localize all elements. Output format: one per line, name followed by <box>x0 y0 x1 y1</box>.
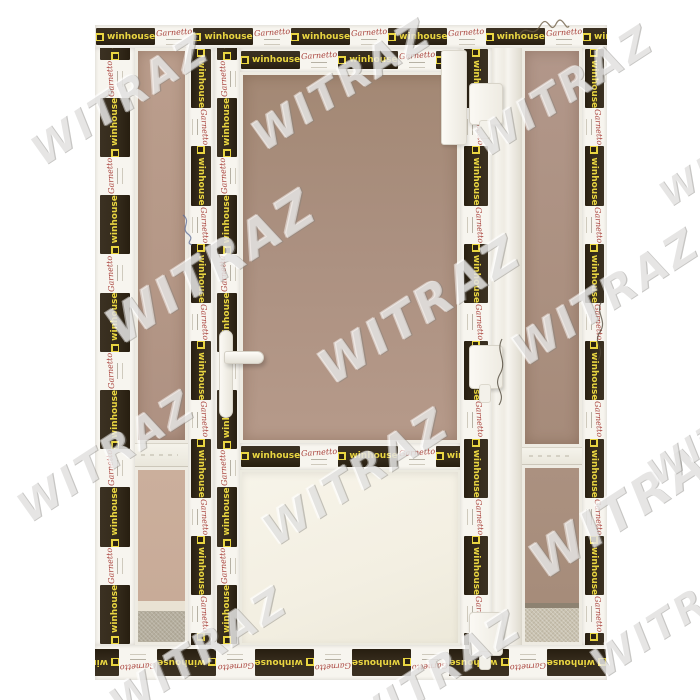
winhouse-logo-icon <box>111 344 119 352</box>
winhouse-wordmark: winhouse <box>255 658 303 668</box>
baseboard-behind-glass <box>138 601 185 611</box>
garnetto-wordmark: Garnetto <box>105 158 116 195</box>
winhouse-wordmark: winhouse <box>252 451 300 461</box>
garnetto-tape-block: Garnetto <box>100 548 130 584</box>
winhouse-logo-icon <box>403 659 411 667</box>
garnetto-wordmark: Garnetto <box>474 499 485 536</box>
winhouse-logo-icon <box>193 33 201 41</box>
winhouse-logo-icon <box>197 633 205 641</box>
winhouse-logo-icon <box>472 439 480 447</box>
winhouse-logo-icon <box>197 439 205 447</box>
winhouse-tape-block: winhouse <box>100 98 130 157</box>
winhouse-logo-icon <box>241 56 249 64</box>
tape-fineprint-lines <box>117 266 123 282</box>
winhouse-tape-block: winhouse <box>464 439 488 498</box>
winhouse-wordmark: winhouse <box>352 658 400 668</box>
winhouse-tape-block: winhouse <box>585 536 604 595</box>
winhouse-logo-icon <box>591 244 599 252</box>
garnetto-wordmark: Garnetto <box>217 158 228 195</box>
garnetto-wordmark: Garnetto <box>120 661 157 672</box>
garnetto-tape-block: Garnetto <box>510 649 546 676</box>
garnetto-tape-block: Garnetto <box>120 649 156 676</box>
garnetto-wordmark: Garnetto <box>448 27 485 38</box>
tape-fineprint-lines <box>193 606 199 622</box>
garnetto-wordmark: Garnetto <box>593 499 604 536</box>
tape-fineprint-lines <box>422 654 438 660</box>
tape-fineprint-lines <box>586 509 592 525</box>
winhouse-logo-icon <box>591 146 599 154</box>
winhouse-wordmark: winhouse <box>590 644 600 645</box>
garnetto-tape-block: Garnetto <box>315 649 351 676</box>
winhouse-logo-icon <box>472 146 480 154</box>
garnetto-tape-block: Garnetto <box>464 207 488 243</box>
winhouse-logo-icon <box>197 244 205 252</box>
wall-behind-glass <box>525 468 579 603</box>
winhouse-logo-icon <box>197 49 205 57</box>
right-sidelight-glass-upper <box>522 48 582 447</box>
tape-fineprint-lines <box>130 654 146 660</box>
garnetto-wordmark: Garnetto <box>199 304 210 341</box>
tape-fineprint-lines <box>586 119 592 135</box>
winhouse-logo-icon <box>598 659 606 667</box>
winhouse-tape-block: winhouse <box>100 195 130 254</box>
winhouse-logo-icon <box>338 56 346 64</box>
tape-fineprint-lines <box>230 558 236 574</box>
winhouse-tape-block: winhouse <box>436 446 460 467</box>
garnetto-wordmark: Garnetto <box>474 304 485 341</box>
winhouse-wordmark: winhouse <box>110 98 120 146</box>
garnetto-tape-block: Garnetto <box>191 109 211 145</box>
winhouse-tape-block: winhouse <box>255 649 314 676</box>
winhouse-logo-icon <box>223 539 231 547</box>
winhouse-wordmark: winhouse <box>196 60 206 108</box>
garnetto-wordmark: Garnetto <box>199 206 210 243</box>
garnetto-wordmark: Garnetto <box>199 499 210 536</box>
handwritten-mark <box>516 16 572 44</box>
garnetto-wordmark: Garnetto <box>593 401 604 438</box>
winhouse-tape-block: winhouse <box>583 28 607 45</box>
winhouse-wordmark: winhouse <box>471 450 481 498</box>
tape-fineprint-lines <box>468 509 474 525</box>
winhouse-tape-block: winhouse <box>96 28 155 45</box>
handwritten-mark <box>494 336 510 408</box>
tape-fineprint-lines <box>459 39 475 45</box>
garnetto-wordmark: Garnetto <box>301 447 338 458</box>
winhouse-wordmark: winhouse <box>222 48 232 49</box>
winhouse-logo-icon <box>197 341 205 349</box>
winhouse-logo-icon <box>591 49 599 57</box>
winhouse-wordmark: winhouse <box>471 255 481 303</box>
winhouse-wordmark: winhouse <box>196 352 206 400</box>
tape-fineprint-lines <box>230 266 236 282</box>
garnetto-wordmark: Garnetto <box>253 27 290 38</box>
carpet-floor-behind-glass <box>525 608 579 642</box>
door-glass <box>240 72 460 443</box>
garnetto-wordmark: Garnetto <box>105 353 116 390</box>
winhouse-logo-icon <box>223 149 231 157</box>
tape-fineprint-lines <box>325 654 341 660</box>
tape-outer-bottom-frame: winhouseGarnettowinhouseGarnettowinhouse… <box>95 645 607 680</box>
garnetto-tape-block: Garnetto <box>100 158 130 194</box>
door-hinge-top <box>469 83 503 125</box>
winhouse-tape-block: winhouse <box>217 98 237 157</box>
garnetto-tape-block: Garnetto <box>399 446 435 467</box>
winhouse-wordmark: winhouse <box>196 450 206 498</box>
garnetto-tape-block: Garnetto <box>100 61 130 97</box>
winhouse-tape-block: winhouse <box>291 28 350 45</box>
door-hinge-bottom <box>469 612 503 656</box>
winhouse-wordmark: winhouse <box>471 157 481 205</box>
winhouse-logo-icon <box>111 659 119 667</box>
tape-fineprint-lines <box>468 412 474 428</box>
winhouse-logo-icon <box>197 536 205 544</box>
winhouse-logo-icon <box>223 636 231 644</box>
tape-fineprint-lines <box>117 71 123 87</box>
garnetto-wordmark: Garnetto <box>412 661 449 672</box>
winhouse-wordmark: winhouse <box>110 48 120 49</box>
garnetto-tape-block: Garnetto <box>412 649 448 676</box>
winhouse-logo-icon <box>111 441 119 449</box>
winhouse-tape-block: winhouse <box>217 487 237 546</box>
tape-fineprint-lines <box>264 39 280 45</box>
garnetto-tape-block: Garnetto <box>100 450 130 486</box>
winhouse-tape-block: winhouse <box>157 649 216 676</box>
wall-behind-glass <box>138 470 185 601</box>
winhouse-logo-icon <box>388 33 396 41</box>
door-lower-panel <box>240 470 460 645</box>
winhouse-wordmark: winhouse <box>590 547 600 595</box>
handwritten-mark <box>178 212 198 248</box>
garnetto-wordmark: Garnetto <box>105 60 116 97</box>
winhouse-wordmark: winhouse <box>349 55 397 65</box>
right-sidelight-glass-lower <box>522 465 582 645</box>
garnetto-tape-block: Garnetto <box>464 304 488 340</box>
winhouse-tape-block: winhouse <box>217 585 237 644</box>
garnetto-wordmark: Garnetto <box>217 547 228 584</box>
garnetto-tape-block: Garnetto <box>100 255 130 291</box>
winhouse-tape-block: winhouse <box>338 446 397 467</box>
winhouse-tape-block: winhouse <box>100 48 130 60</box>
tape-fineprint-lines <box>409 62 425 68</box>
tape-fineprint-lines <box>468 314 474 330</box>
tape-door-top-rail: winhouseGarnettowinhouseGarnettowinhouse… <box>240 48 460 72</box>
handwritten-mark <box>592 298 612 364</box>
tape-fineprint-lines <box>520 654 536 660</box>
garnetto-tape-block: Garnetto <box>464 499 488 535</box>
winhouse-tape-block: winhouse <box>585 49 604 108</box>
garnetto-wordmark: Garnetto <box>301 50 338 61</box>
winhouse-logo-icon <box>96 33 104 41</box>
tape-fineprint-lines <box>311 459 327 465</box>
winhouse-logo-icon <box>591 536 599 544</box>
garnetto-tape-block: Garnetto <box>217 255 237 291</box>
tape-fineprint-lines <box>586 217 592 233</box>
garnetto-wordmark: Garnetto <box>474 401 485 438</box>
winhouse-logo-icon <box>291 33 299 41</box>
winhouse-logo-icon <box>306 659 314 667</box>
winhouse-logo-icon <box>501 659 509 667</box>
winhouse-tape-block: winhouse <box>100 293 130 352</box>
garnetto-wordmark: Garnetto <box>217 661 254 672</box>
garnetto-tape-block: Garnetto <box>585 401 604 437</box>
garnetto-tape-block: Garnetto <box>191 596 211 632</box>
winhouse-logo-icon <box>111 636 119 644</box>
winhouse-tape-block: winhouse <box>585 244 604 303</box>
winhouse-logo-icon <box>583 33 591 41</box>
winhouse-logo-icon <box>472 536 480 544</box>
winhouse-logo-icon <box>338 452 346 460</box>
winhouse-tape-block: winhouse <box>217 48 237 60</box>
tape-fineprint-lines <box>230 460 236 476</box>
garnetto-tape-block: Garnetto <box>464 401 488 437</box>
winhouse-wordmark: winhouse <box>302 32 350 42</box>
winhouse-logo-icon <box>111 52 119 60</box>
winhouse-logo-icon <box>472 244 480 252</box>
garnetto-tape-block: Garnetto <box>585 499 604 535</box>
winhouse-wordmark: winhouse <box>107 32 155 42</box>
winhouse-wordmark: winhouse <box>447 451 460 461</box>
garnetto-tape-block: Garnetto <box>217 649 253 676</box>
winhouse-tape-block: winhouse <box>191 633 211 645</box>
winhouse-wordmark: winhouse <box>222 195 232 243</box>
garnetto-wordmark: Garnetto <box>351 27 388 38</box>
garnetto-tape-block: Garnetto <box>448 28 484 45</box>
tape-fineprint-lines <box>166 39 182 45</box>
winhouse-wordmark: winhouse <box>222 585 232 633</box>
winhouse-tape-block: winhouse <box>585 439 604 498</box>
winhouse-tape-block: winhouse <box>338 51 397 69</box>
tape-fineprint-lines <box>193 412 199 428</box>
winhouse-tape-block: winhouse <box>464 536 488 595</box>
winhouse-wordmark: winhouse <box>110 195 120 243</box>
tape-fineprint-lines <box>468 217 474 233</box>
garnetto-wordmark: Garnetto <box>105 450 116 487</box>
garnetto-wordmark: Garnetto <box>593 206 604 243</box>
garnetto-tape-block: Garnetto <box>217 61 237 97</box>
winhouse-logo-icon <box>223 52 231 60</box>
winhouse-wordmark: winhouse <box>349 451 397 461</box>
tape-fineprint-lines <box>117 168 123 184</box>
winhouse-wordmark: winhouse <box>471 547 481 595</box>
tape-fineprint-lines <box>586 412 592 428</box>
winhouse-wordmark: winhouse <box>590 157 600 205</box>
winhouse-tape-block: winhouse <box>241 446 300 467</box>
winhouse-wordmark: winhouse <box>196 157 206 205</box>
garnetto-wordmark: Garnetto <box>199 401 210 438</box>
winhouse-tape-block: winhouse <box>388 28 447 45</box>
winhouse-logo-icon <box>436 452 444 460</box>
garnetto-tape-block: Garnetto <box>217 548 237 584</box>
winhouse-wordmark: winhouse <box>590 255 600 303</box>
winhouse-wordmark: winhouse <box>196 644 206 645</box>
winhouse-tape-block: winhouse <box>191 439 211 498</box>
garnetto-tape-block: Garnetto <box>191 304 211 340</box>
winhouse-tape-block: winhouse <box>191 146 211 205</box>
winhouse-wordmark: winhouse <box>252 55 300 65</box>
winhouse-wordmark: winhouse <box>547 658 595 668</box>
winhouse-tape-block: winhouse <box>193 28 252 45</box>
garnetto-wordmark: Garnetto <box>217 255 228 292</box>
garnetto-wordmark: Garnetto <box>398 50 435 61</box>
winhouse-wordmark: winhouse <box>590 450 600 498</box>
tape-fineprint-lines <box>361 39 377 45</box>
garnetto-tape-block: Garnetto <box>399 51 435 69</box>
tape-fineprint-lines <box>193 119 199 135</box>
garnetto-wordmark: Garnetto <box>105 255 116 292</box>
tape-fineprint-lines <box>311 62 327 68</box>
garnetto-wordmark: Garnetto <box>593 596 604 633</box>
watermark: WITRAZ <box>651 85 700 216</box>
garnetto-tape-block: Garnetto <box>217 158 237 194</box>
winhouse-wordmark: winhouse <box>110 487 120 535</box>
carpet-floor-behind-glass <box>138 611 185 642</box>
garnetto-wordmark: Garnetto <box>217 60 228 97</box>
winhouse-tape-block: winhouse <box>585 633 604 645</box>
winhouse-logo-icon <box>111 246 119 254</box>
winhouse-tape-block: winhouse <box>100 585 130 644</box>
winhouse-logo-icon <box>223 246 231 254</box>
winhouse-tape-block: winhouse <box>191 244 211 303</box>
garnetto-wordmark: Garnetto <box>217 450 228 487</box>
watermark: WITRAZ <box>639 363 700 494</box>
garnetto-wordmark: Garnetto <box>315 661 352 672</box>
winhouse-logo-icon <box>197 146 205 154</box>
winhouse-wordmark: winhouse <box>590 60 600 108</box>
room-view-through-glass <box>138 470 185 642</box>
winhouse-tape-block: winhouse <box>191 49 211 108</box>
winhouse-logo-icon <box>223 441 231 449</box>
garnetto-tape-block: Garnetto <box>351 28 387 45</box>
winhouse-tape-block: winhouse <box>217 195 237 254</box>
left-sidelight-glass-lower <box>135 467 188 645</box>
tape-outer-left-frame: winhouseGarnettowinhouseGarnettowinhouse… <box>95 48 135 645</box>
garnetto-tape-block: Garnetto <box>191 499 211 535</box>
winhouse-logo-icon <box>241 452 249 460</box>
winhouse-logo-icon <box>111 539 119 547</box>
winhouse-wordmark: winhouse <box>110 293 120 341</box>
tape-fineprint-lines <box>228 654 244 660</box>
left-sidelight-divider-rail <box>135 443 188 467</box>
winhouse-wordmark: winhouse <box>399 32 447 42</box>
winhouse-tape-block: winhouse <box>100 390 130 449</box>
winhouse-logo-icon <box>208 659 216 667</box>
tape-fineprint-lines <box>193 509 199 525</box>
tape-fineprint-lines <box>409 459 425 465</box>
winhouse-tape-block: winhouse <box>100 487 130 546</box>
tape-fineprint-lines <box>586 606 592 622</box>
winhouse-tape-block: winhouse <box>191 536 211 595</box>
winhouse-logo-icon <box>111 149 119 157</box>
winhouse-tape-block: winhouse <box>191 341 211 400</box>
door-handle-lever <box>224 351 264 364</box>
door-handle-backplate <box>219 330 233 418</box>
garnetto-wordmark: Garnetto <box>199 109 210 146</box>
hinge-side-cover-profile <box>441 50 467 145</box>
garnetto-wordmark: Garnetto <box>593 109 604 146</box>
right-sidelight-divider-rail <box>522 447 582 465</box>
garnetto-wordmark: Garnetto <box>398 447 435 458</box>
tape-door-mid-rail: winhouseGarnettowinhouseGarnettowinhouse… <box>240 443 460 470</box>
garnetto-tape-block: Garnetto <box>301 446 337 467</box>
garnetto-wordmark: Garnetto <box>105 547 116 584</box>
tape-fineprint-lines <box>117 558 123 574</box>
garnetto-tape-block: Garnetto <box>217 450 237 486</box>
garnetto-tape-block: Garnetto <box>100 353 130 389</box>
winhouse-tape-block: winhouse <box>352 649 411 676</box>
winhouse-logo-icon <box>472 49 480 57</box>
winhouse-wordmark: winhouse <box>222 98 232 146</box>
winhouse-tape-block: winhouse <box>585 146 604 205</box>
winhouse-tape-block: winhouse <box>464 146 488 205</box>
winhouse-logo-icon <box>486 33 494 41</box>
tape-fineprint-lines <box>230 168 236 184</box>
garnetto-tape-block: Garnetto <box>585 207 604 243</box>
winhouse-wordmark: winhouse <box>204 32 252 42</box>
winhouse-wordmark: winhouse <box>95 658 108 668</box>
garnetto-wordmark: Garnetto <box>474 206 485 243</box>
garnetto-wordmark: Garnetto <box>509 661 546 672</box>
garnetto-wordmark: Garnetto <box>156 27 193 38</box>
tape-fineprint-lines <box>193 314 199 330</box>
winhouse-wordmark: winhouse <box>110 390 120 438</box>
tape-fineprint-lines <box>117 460 123 476</box>
tape-left-mullion: winhouseGarnettowinhouseGarnettowinhouse… <box>188 48 214 645</box>
garnetto-tape-block: Garnetto <box>301 51 337 69</box>
tape-fineprint-lines <box>230 71 236 87</box>
winhouse-wordmark: winhouse <box>196 547 206 595</box>
winhouse-tape-block: winhouse <box>547 649 606 676</box>
winhouse-wordmark: winhouse <box>222 487 232 535</box>
garnetto-tape-block: Garnetto <box>254 28 290 45</box>
winhouse-tape-block: winhouse <box>95 649 119 676</box>
garnetto-tape-block: Garnetto <box>156 28 192 45</box>
winhouse-logo-icon <box>591 439 599 447</box>
winhouse-wordmark: winhouse <box>196 255 206 303</box>
garnetto-wordmark: Garnetto <box>199 596 210 633</box>
product-photo: winhouseGarnettowinhouseGarnettowinhouse… <box>0 0 700 700</box>
winhouse-tape-block: winhouse <box>464 244 488 303</box>
room-view-through-glass <box>525 468 579 642</box>
winhouse-logo-icon <box>591 633 599 641</box>
winhouse-wordmark: winhouse <box>110 585 120 633</box>
tape-fineprint-lines <box>117 363 123 379</box>
garnetto-tape-block: Garnetto <box>585 109 604 145</box>
garnetto-tape-block: Garnetto <box>191 401 211 437</box>
garnetto-tape-block: Garnetto <box>585 596 604 632</box>
winhouse-tape-block: winhouse <box>241 51 300 69</box>
winhouse-wordmark: winhouse <box>594 32 607 42</box>
winhouse-wordmark: winhouse <box>157 658 205 668</box>
